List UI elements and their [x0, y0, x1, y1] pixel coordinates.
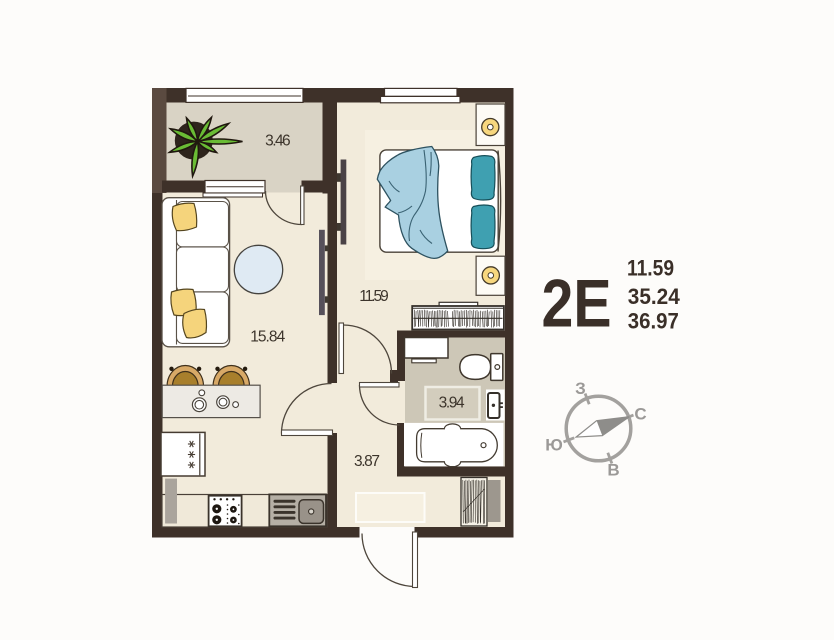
svg-text:36.97: 36.97	[628, 309, 679, 334]
svg-text:15.84: 15.84	[250, 328, 285, 345]
svg-text:В: В	[607, 461, 619, 480]
svg-text:3.94: 3.94	[439, 395, 465, 412]
svg-text:3.87: 3.87	[354, 453, 380, 470]
svg-text:11.59: 11.59	[359, 288, 389, 305]
svg-text:С: С	[634, 405, 646, 424]
svg-text:11.59: 11.59	[627, 256, 674, 281]
svg-text:2Е: 2Е	[542, 266, 612, 342]
svg-text:Ю: Ю	[545, 436, 563, 455]
svg-text:35.24: 35.24	[628, 284, 681, 309]
svg-text:З: З	[575, 379, 586, 398]
svg-text:3.46: 3.46	[265, 133, 291, 150]
